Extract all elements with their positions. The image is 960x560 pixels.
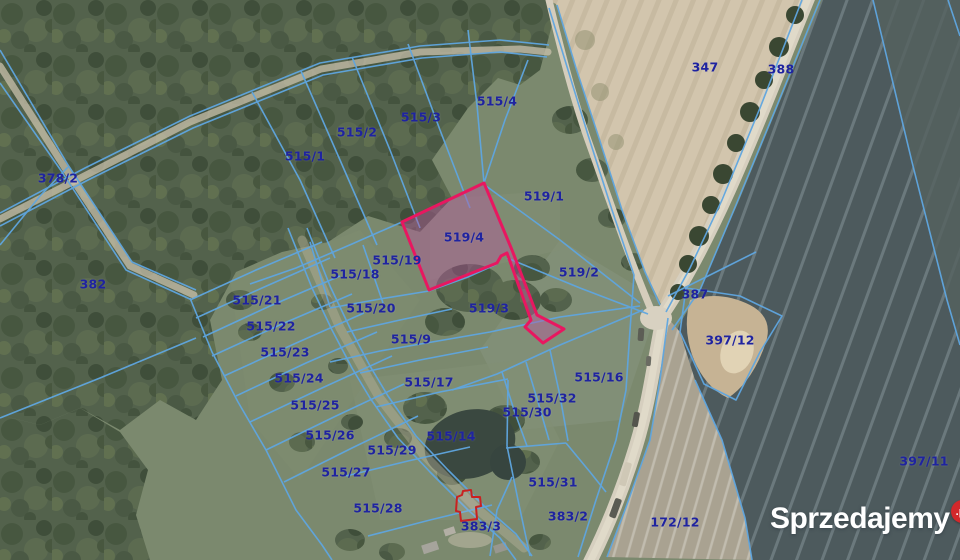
watermark-pl-badge: .pl	[951, 500, 960, 523]
terrain-layer	[0, 0, 960, 560]
watermark-text: Sprzedajemy	[770, 504, 950, 534]
aerial-map	[0, 0, 960, 560]
map-viewport[interactable]: 378/2382515/1515/2515/3515/4347388519/15…	[0, 0, 960, 560]
watermark: Sprzedajemy .pl	[770, 504, 960, 534]
watermark-tld: .pl	[956, 506, 960, 518]
